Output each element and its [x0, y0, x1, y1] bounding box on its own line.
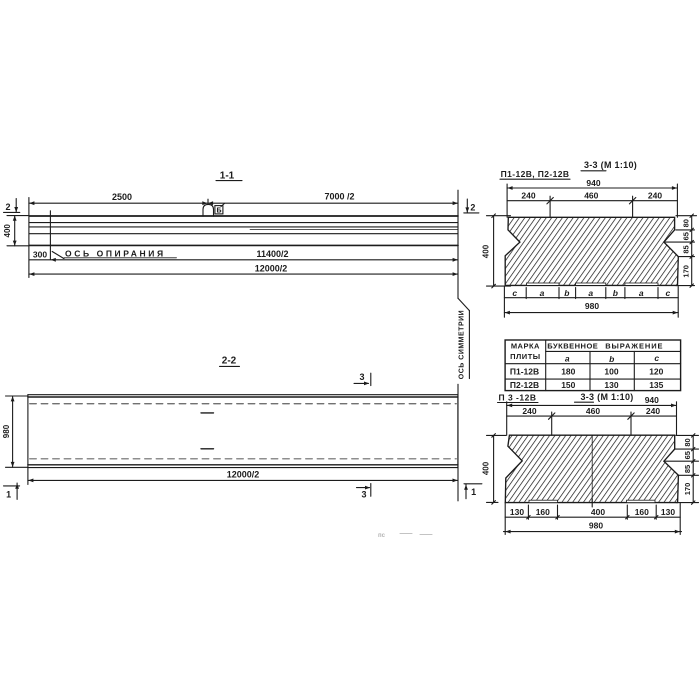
svg-text:80: 80 [683, 438, 692, 446]
svg-text:ВЫРАЖЕНИЕ: ВЫРАЖЕНИЕ [605, 341, 663, 350]
svg-text:МАРКА: МАРКА [511, 342, 540, 351]
svg-text:3-3 (М 1:10): 3-3 (М 1:10) [584, 160, 637, 170]
svg-text:1: 1 [471, 487, 476, 497]
svg-text:400: 400 [3, 224, 12, 238]
svg-text:12000/2: 12000/2 [255, 263, 288, 273]
svg-text:a: a [565, 353, 570, 363]
svg-text:2: 2 [470, 203, 475, 213]
svg-text:130: 130 [510, 507, 524, 517]
svg-text:11400/2: 11400/2 [256, 249, 288, 259]
svg-text:c: c [654, 353, 659, 363]
svg-text:240: 240 [648, 191, 662, 201]
svg-text:b: b [609, 354, 614, 364]
svg-text:150: 150 [561, 380, 575, 390]
svg-text:170: 170 [681, 265, 690, 278]
svg-text:980: 980 [2, 424, 11, 438]
svg-text:b: b [613, 288, 618, 298]
svg-text:940: 940 [586, 178, 600, 188]
svg-text:БУКВЕННОЕ: БУКВЕННОЕ [547, 341, 598, 350]
svg-text:2: 2 [5, 202, 10, 212]
svg-text:П1-12В: П1-12В [510, 367, 539, 377]
svg-text:460: 460 [584, 191, 598, 201]
svg-text:980: 980 [585, 301, 599, 311]
svg-text:a: a [540, 288, 545, 298]
svg-text:3: 3 [359, 372, 364, 382]
svg-text:135: 135 [649, 380, 663, 390]
svg-text:240: 240 [521, 191, 535, 201]
svg-text:a: a [639, 288, 644, 298]
svg-text:ОСЬ СИММЕТРИИ: ОСЬ СИММЕТРИИ [459, 310, 466, 379]
svg-text:400: 400 [481, 461, 490, 475]
svg-text:3-3 (М 1:10): 3-3 (М 1:10) [580, 392, 633, 402]
svg-text:П1-12В, П2-12В: П1-12В, П2-12В [501, 169, 570, 179]
svg-text:c: c [512, 288, 517, 298]
svg-text:85: 85 [683, 465, 692, 473]
svg-text:пс: пс [378, 533, 386, 539]
svg-text:a: a [588, 288, 593, 298]
svg-text:240: 240 [646, 406, 660, 416]
svg-text:80: 80 [681, 219, 690, 227]
svg-text:130: 130 [661, 507, 675, 517]
svg-text:b: b [564, 288, 569, 298]
svg-text:ПЛИТЫ: ПЛИТЫ [510, 352, 540, 361]
svg-text:160: 160 [635, 507, 649, 517]
svg-text:ОСЬ ОПИРАНИЯ: ОСЬ ОПИРАНИЯ [65, 249, 166, 259]
svg-text:65: 65 [683, 451, 692, 459]
svg-text:160: 160 [536, 507, 550, 517]
svg-text:240: 240 [522, 406, 536, 416]
svg-text:2-2: 2-2 [222, 356, 237, 367]
svg-text:460: 460 [586, 406, 600, 416]
svg-text:Б: Б [216, 207, 221, 214]
svg-text:7000 /2: 7000 /2 [324, 192, 354, 202]
svg-text:П 3 -12В: П 3 -12В [499, 392, 537, 402]
svg-text:170: 170 [683, 483, 692, 496]
svg-text:940: 940 [645, 395, 659, 405]
svg-text:85: 85 [681, 245, 690, 253]
svg-text:1-1: 1-1 [220, 170, 235, 181]
svg-text:100: 100 [604, 367, 618, 377]
svg-text:3: 3 [361, 490, 366, 500]
svg-text:980: 980 [589, 520, 603, 530]
svg-text:c: c [666, 288, 671, 298]
svg-text:12000/2: 12000/2 [227, 470, 260, 480]
svg-text:П2-12В: П2-12В [510, 380, 539, 390]
svg-text:65: 65 [681, 232, 690, 240]
svg-text:180: 180 [561, 367, 575, 377]
svg-text:130: 130 [604, 380, 618, 390]
svg-text:2500: 2500 [112, 192, 132, 202]
svg-text:400: 400 [591, 507, 605, 517]
svg-text:1: 1 [6, 490, 11, 500]
svg-text:400: 400 [482, 244, 491, 258]
svg-text:300: 300 [33, 250, 47, 260]
svg-text:120: 120 [649, 367, 663, 377]
